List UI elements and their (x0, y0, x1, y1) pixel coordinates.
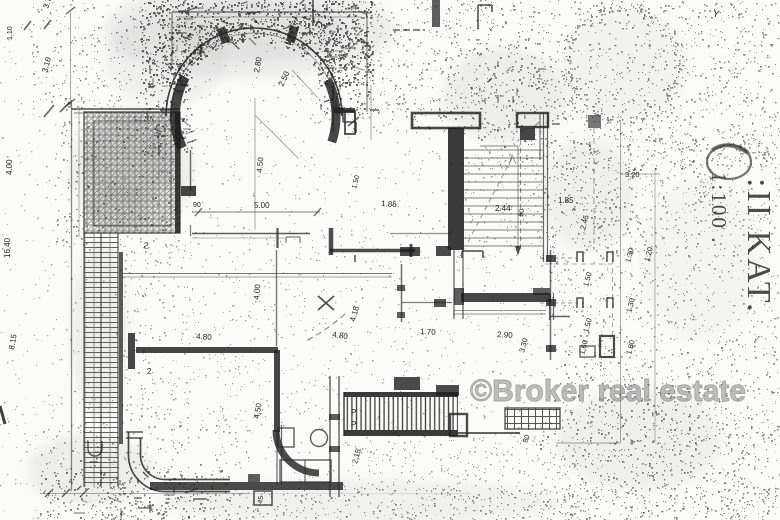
svg-text:8.15: 8.15 (7, 333, 19, 350)
svg-text:5.00: 5.00 (254, 201, 270, 210)
svg-text:4.00: 4.00 (252, 283, 262, 300)
svg-text:1.86: 1.86 (381, 199, 398, 209)
svg-text:©Broker real estate: ©Broker real estate (470, 373, 746, 408)
svg-text:2: 2 (147, 367, 152, 376)
svg-text:4.50: 4.50 (252, 402, 264, 419)
svg-text:4.80: 4.80 (332, 330, 349, 341)
svg-text:4.00: 4.00 (5, 159, 14, 175)
svg-text:2: 2 (143, 240, 150, 251)
svg-text:1:100 .: 1:100 . (707, 172, 731, 244)
svg-text:1.30: 1.30 (624, 297, 636, 313)
svg-text:1.30: 1.30 (623, 247, 635, 263)
svg-text:3.70: 3.70 (41, 0, 55, 10)
svg-text::II KAT.: :II KAT. (740, 178, 777, 315)
svg-text:3.20: 3.20 (625, 170, 640, 179)
svg-text:1.50: 1.50 (581, 271, 593, 287)
svg-text:1.85: 1.85 (558, 196, 574, 205)
svg-text:P: P (351, 408, 356, 417)
svg-text:16,40: 16,40 (3, 237, 12, 258)
svg-text:1.50: 1.50 (581, 317, 593, 333)
svg-text:1.70: 1.70 (420, 327, 437, 337)
svg-text:3.30: 3.30 (517, 337, 529, 353)
svg-text:90: 90 (193, 202, 201, 209)
svg-text:80: 80 (522, 434, 531, 444)
svg-text:90: 90 (518, 208, 526, 217)
svg-text:1.10: 1.10 (7, 26, 14, 40)
svg-text:2.90: 2.90 (497, 330, 514, 340)
svg-text:Y: Y (711, 8, 721, 20)
svg-text:1.50: 1.50 (351, 174, 361, 189)
svg-text:4.50: 4.50 (255, 156, 265, 173)
svg-text:45: 45 (257, 495, 265, 504)
svg-text:4.80: 4.80 (196, 332, 213, 342)
svg-text:P: P (351, 420, 356, 429)
svg-text:1.60: 1.60 (577, 339, 589, 355)
svg-text:2.44: 2.44 (495, 204, 511, 213)
svg-text:4.18: 4.18 (348, 305, 361, 323)
svg-text:2.15: 2.15 (350, 448, 362, 464)
svg-text:1.80: 1.80 (624, 339, 636, 355)
